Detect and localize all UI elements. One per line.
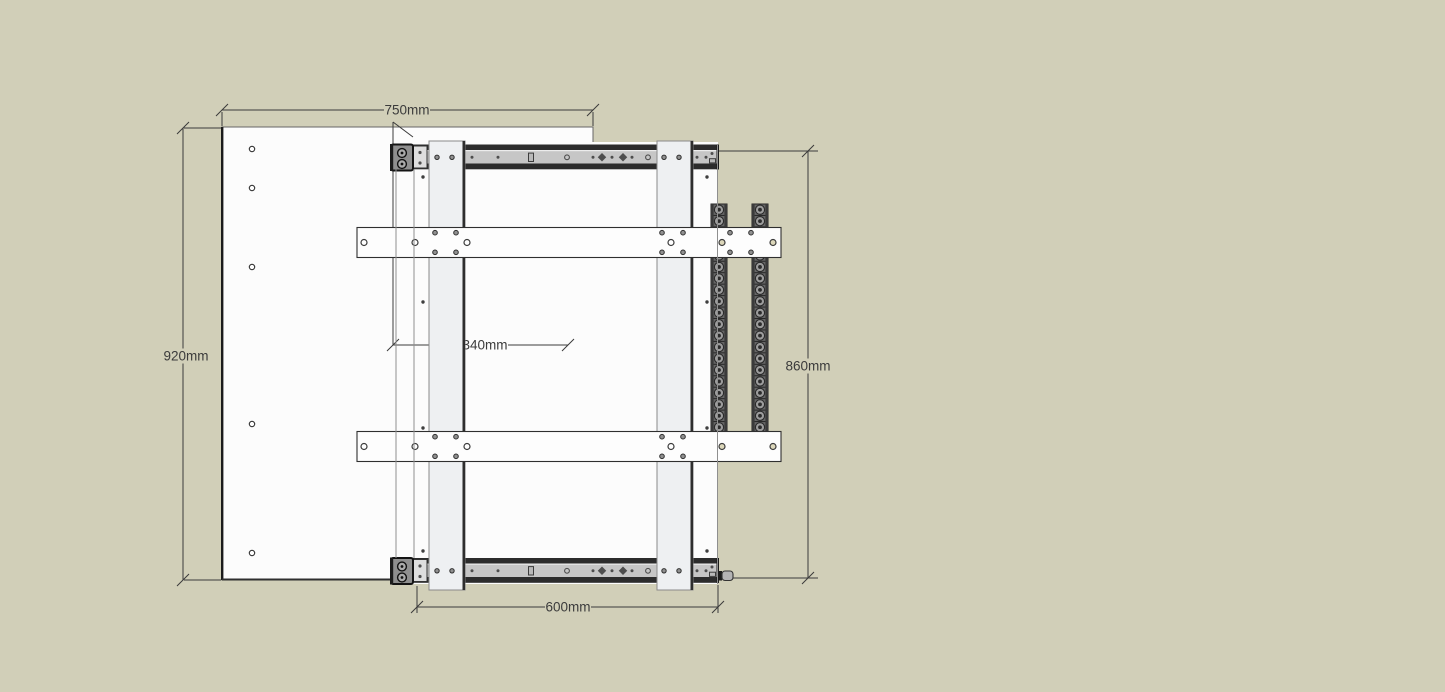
frame-hole — [421, 300, 424, 303]
bar-screw — [454, 454, 459, 459]
rail-hole — [696, 569, 699, 572]
bar-hole — [719, 444, 725, 450]
frame-hole — [705, 300, 708, 303]
bar-screw — [660, 434, 665, 439]
bar-screw — [454, 250, 459, 255]
bar-screw — [749, 230, 754, 235]
bar-screw — [433, 454, 438, 459]
carriage-roller-axle — [401, 565, 404, 568]
rail-slot — [529, 567, 534, 575]
rail-hole — [592, 569, 595, 572]
bar-screw — [660, 454, 665, 459]
rail-hole — [611, 156, 614, 159]
chain-pin — [758, 391, 762, 395]
rail-hole — [631, 156, 634, 159]
chain-pin — [758, 311, 762, 315]
rail-hole — [696, 156, 699, 159]
frame-hole — [421, 175, 424, 178]
frame-hole — [421, 426, 424, 429]
bar-hole — [719, 240, 725, 246]
rail-hole — [471, 156, 474, 159]
panel-hole — [249, 421, 254, 426]
bar-screw — [433, 434, 438, 439]
bar-screw — [681, 230, 686, 235]
chain-pin — [758, 368, 762, 372]
post-screw — [435, 569, 439, 573]
bar-screw — [454, 434, 459, 439]
carriage-roller-axle — [401, 152, 404, 155]
vertical-post-right — [657, 141, 693, 590]
panel-hole — [249, 146, 254, 151]
vertical-post-left — [429, 141, 465, 590]
bar-screw — [728, 230, 733, 235]
chain-pin — [758, 277, 762, 281]
chain-pin — [758, 288, 762, 292]
bar-hole — [464, 240, 470, 246]
dim-label-middle: 340mm — [462, 338, 507, 353]
frame-hole — [705, 175, 708, 178]
rail-hole — [471, 569, 474, 572]
dim-label-left: 920mm — [163, 349, 208, 364]
post-screw — [435, 155, 439, 159]
vertical-post-right-edge — [691, 141, 694, 590]
chain-pin — [758, 425, 762, 429]
bar-screw — [433, 250, 438, 255]
chain-pin — [758, 402, 762, 406]
vertical-post-left-edge — [463, 141, 466, 590]
plate-screw — [418, 161, 421, 164]
plate-screw — [418, 151, 421, 154]
back-panel-left-edge — [221, 127, 223, 580]
frame-hole — [705, 426, 708, 429]
bar-screw — [728, 250, 733, 255]
rail-hole — [711, 566, 714, 569]
chain-pin — [758, 380, 762, 384]
bar-screw — [433, 230, 438, 235]
chain-pin — [758, 345, 762, 349]
chain-pin — [758, 219, 762, 223]
post-screw — [662, 569, 666, 573]
bar-screw — [681, 434, 686, 439]
rail-hole — [711, 152, 714, 155]
carriage-roller-axle — [401, 163, 404, 166]
cad-viewport: 750mm 920mm 340mm 860m — [0, 0, 1445, 692]
bar-hole — [361, 444, 367, 450]
chain-pin — [758, 357, 762, 361]
frame-hole — [705, 549, 708, 552]
chain-pin — [758, 299, 762, 303]
chain-pin — [758, 208, 762, 212]
bar-hole — [412, 444, 418, 450]
bar-screw — [454, 230, 459, 235]
carriage-roller-axle — [401, 576, 404, 579]
bar-hole — [464, 444, 470, 450]
dim-label-bottom: 600mm — [545, 600, 590, 615]
bar-hole — [668, 444, 674, 450]
post-screw — [662, 155, 666, 159]
post-screw — [677, 155, 681, 159]
chain-pin — [758, 334, 762, 338]
cad-drawing: 750mm 920mm 340mm 860m — [0, 0, 1445, 692]
carriage-edge — [390, 144, 393, 171]
post-screw — [677, 569, 681, 573]
rail-hole — [631, 569, 634, 572]
bar-hole — [412, 240, 418, 246]
rail-hole — [705, 569, 708, 572]
rail-slot — [529, 153, 534, 161]
bar-hole — [770, 240, 776, 246]
bar-screw — [681, 250, 686, 255]
slide-end-plate — [414, 146, 428, 168]
post-screw — [450, 569, 454, 573]
rail-hole — [592, 156, 595, 159]
bar-hole — [361, 240, 367, 246]
panel-hole — [249, 264, 254, 269]
bar-hole — [770, 444, 776, 450]
chain-pin — [758, 265, 762, 269]
rail-hole — [611, 569, 614, 572]
end-pin — [722, 571, 733, 581]
rail-hole — [497, 569, 500, 572]
rail-slot — [710, 159, 716, 163]
frame-hole — [421, 549, 424, 552]
bar-screw — [749, 250, 754, 255]
rail-hole — [705, 156, 708, 159]
chain-pin — [758, 414, 762, 418]
dim-label-top: 750mm — [384, 103, 429, 118]
slide-end-plate — [414, 560, 428, 582]
plate-screw — [418, 575, 421, 578]
bar-screw — [681, 454, 686, 459]
carriage-edge — [390, 558, 393, 585]
plate-screw — [418, 564, 421, 567]
post-screw — [450, 155, 454, 159]
bar-hole — [668, 240, 674, 246]
panel-hole — [249, 185, 254, 190]
rail-slot — [710, 572, 716, 576]
panel-hole — [249, 550, 254, 555]
dim-label-right: 860mm — [785, 359, 830, 374]
rail-hole — [497, 156, 500, 159]
bar-screw — [660, 230, 665, 235]
chain-pin — [758, 322, 762, 326]
pin-base — [718, 571, 722, 581]
bar-screw — [660, 250, 665, 255]
